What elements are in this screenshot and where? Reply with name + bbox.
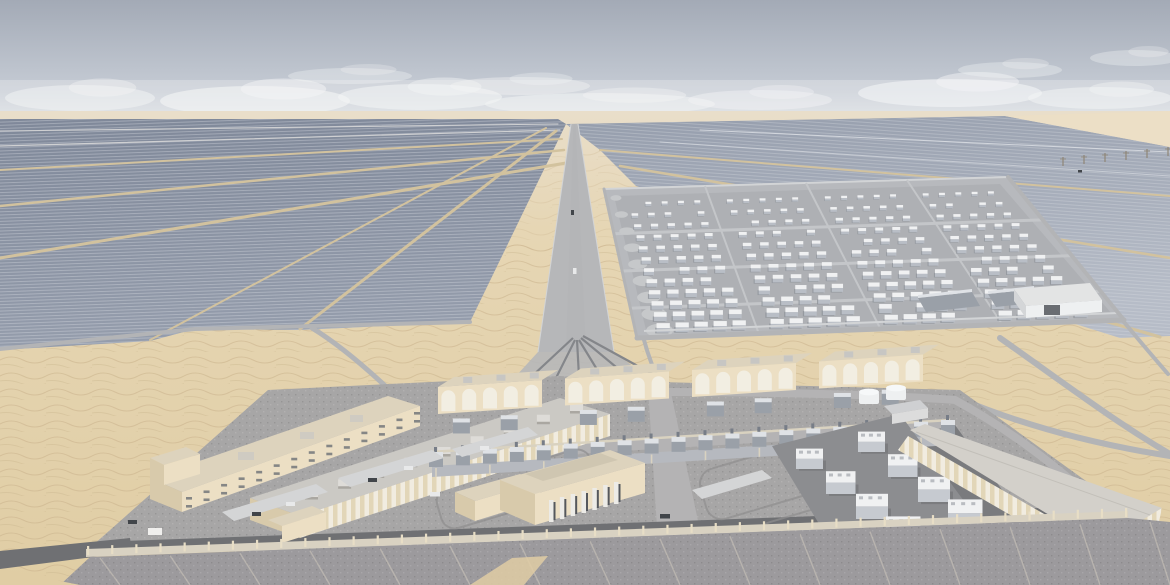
window [274,464,280,467]
vehicle [1078,170,1082,173]
bushing [542,440,545,445]
battery-unit-front [887,252,896,255]
battery-unit-front [791,278,802,282]
facade-arch [906,359,920,380]
battery-unit [809,318,822,323]
battery-unit-front [968,239,977,242]
window [186,497,192,500]
battery-unit-front [957,250,966,253]
wall-post [642,526,644,535]
wall-post [87,546,89,555]
window [256,479,262,482]
battery-unit [781,297,793,301]
battery-unit [886,216,893,219]
battery-unit-front [686,293,697,297]
battery-unit [858,228,866,231]
battery-unit-front [727,202,733,204]
transformer-top [580,410,597,414]
switchgear-unit [618,444,632,455]
battery-unit-front [782,256,791,259]
battery-unit [692,311,705,316]
window [204,498,210,501]
window [309,459,315,462]
battery-unit-front [639,249,648,252]
battery-unit-front [763,302,775,306]
vehicle [128,520,137,524]
facade-arch [504,386,518,407]
bushing [434,447,437,452]
rooftop-unit [238,452,254,460]
battery-unit [760,242,769,245]
stack-pipe [614,482,619,504]
facade-arch [716,372,730,393]
battery-unit [776,198,782,200]
battery-unit-front [804,311,817,315]
genset-vent [815,451,819,454]
window [291,458,297,461]
battery-unit [704,288,715,292]
battery-unit-front [923,285,934,289]
battery-unit [739,232,747,235]
battery-unit [683,278,694,282]
genset-vent [869,434,873,437]
battery-unit-front [807,233,815,236]
genset-vent [930,479,934,482]
battery-unit [874,293,886,297]
battery-unit-front [979,205,986,207]
battery-unit [827,273,838,277]
facade-arch [462,389,476,410]
battery-unit [996,278,1007,282]
battery-unit-front [929,262,939,265]
switchgear-top [591,442,605,447]
roof-vent [877,349,886,355]
wall-post [256,540,258,549]
battery-unit [832,284,843,288]
wall-post [473,532,475,541]
battery-unit-front [670,305,682,309]
battery-unit-front [726,303,738,307]
window [379,433,385,436]
stack-pipe [560,497,565,519]
battery-unit-front [743,246,752,249]
battery-unit-front [881,275,892,279]
battery-unit [676,322,689,327]
genset-vent [861,434,865,437]
battery-unit [892,227,900,230]
stack-gap [619,484,621,502]
battery-unit [1004,212,1011,215]
battery-unit [842,305,855,310]
battery-unit-front [874,197,880,199]
battery-unit [790,318,803,323]
battery-unit [727,199,733,201]
window [326,445,332,448]
cloud-puff [1128,46,1169,57]
genset-unit [948,499,983,513]
solar-plant-aerial-rendering [0,0,1170,585]
genset-unit [796,449,823,459]
transformer-top [501,415,518,419]
vehicle [660,514,670,519]
facade-arch [885,361,899,382]
battery-unit-front [747,257,756,260]
battery-unit-front [764,257,773,260]
battery-unit [985,235,994,238]
battery-unit [639,246,648,249]
facade-arch [525,385,539,406]
battery-unit-front [1027,248,1036,251]
battery-unit-front [946,206,953,208]
genset-front [858,442,885,452]
battery-unit-front [688,237,696,240]
battery-unit-front [674,248,683,251]
cloud-puff [510,73,573,86]
battery-unit-front [649,294,660,298]
battery-unit [864,239,873,242]
vehicle [404,466,413,470]
battery-unit-front [701,225,708,228]
bushing [784,425,787,430]
battery-unit [978,279,989,283]
battery-unit-front [992,249,1001,252]
battery-unit [1051,276,1062,280]
facade-arch [843,363,857,384]
battery-unit [764,253,773,256]
battery-unit [893,260,903,264]
battery-unit-front [773,234,781,237]
battery-unit-front [869,220,876,223]
battery-unit-front [792,200,798,202]
battery-unit-front [747,212,754,214]
battery-unit-front [995,227,1003,230]
wall-post [280,539,282,548]
battery-unit [756,231,764,234]
vehicle [368,478,377,482]
battery-unit-front [1014,282,1025,286]
wall-post [304,538,306,547]
window [221,484,227,487]
genset-vent [846,473,850,476]
hvac-unit [537,415,550,423]
battery-unit-front [832,288,843,292]
battery-unit-front [729,314,742,318]
battery-unit [874,195,880,197]
window [414,412,420,415]
battery-unit [1017,255,1027,259]
battery-unit [917,270,928,274]
battery-unit [708,244,717,247]
battery-unit-front [704,292,715,296]
battery-unit [847,207,854,210]
battery-unit-front [751,268,761,271]
bushing [596,437,599,442]
battery-unit [671,234,679,237]
bushing [569,439,572,444]
battery-unit-front [922,251,931,254]
window [379,425,385,428]
battery-unit-front [665,283,676,287]
roof-vent [496,375,505,381]
battery-unit-front [870,253,879,256]
battery-unit [710,310,723,315]
battery-unit [791,274,802,278]
battery-unit [923,193,929,195]
warehouse-door [1044,305,1060,315]
window [239,477,245,480]
battery-unit [989,267,1000,271]
battery-unit-front [1007,271,1018,275]
window [221,492,227,495]
battery-unit-front [731,213,738,215]
battery-unit-front [786,267,796,270]
bushing [757,427,760,432]
battery-unit-front [836,221,843,224]
stack-pipe [582,491,587,513]
transformer-top [628,407,645,411]
battery-unit [1012,223,1020,226]
cloud-puff [1002,58,1049,69]
battery-unit [825,196,831,198]
battery-unit [695,322,708,327]
battery-unit [812,241,821,244]
battery-unit [751,265,761,269]
battery-unit [935,269,946,273]
battery-unit [922,248,931,251]
battery-unit [694,255,703,258]
genset-unit [826,471,856,482]
genset-front [856,506,888,519]
battery-unit-front [667,294,678,298]
battery-unit-front [634,227,641,230]
battery-unit [939,193,945,195]
roof-vent [530,372,539,378]
battery-unit-front [776,200,782,202]
battery-unit [875,228,883,231]
bushing [811,423,814,428]
facade-arch [822,365,836,386]
wall-post [425,534,427,543]
battery-unit [785,307,798,312]
gatehouse [148,528,162,535]
battery-unit-front [645,204,651,206]
battery-unit [930,204,937,207]
battery-unit [733,320,746,325]
battery-unit [960,225,968,228]
wall-post [184,542,186,551]
switchgear-top [779,430,793,435]
stack-pipe [592,488,597,510]
battery-unit [852,250,861,253]
battery-unit-front [648,215,655,217]
stack-gap [554,502,556,520]
battery-unit-front [799,255,808,258]
bushing [946,415,949,420]
wall-post [1004,512,1006,521]
battery-unit-front [874,298,886,302]
battery-unit-front [678,203,684,205]
battery-unit [870,250,879,253]
wall-post [546,529,548,538]
battery-unit [649,290,660,294]
battery-unit-front [875,231,883,234]
roof-vent [844,351,853,357]
battery-unit [905,281,916,285]
roof-vent [911,347,920,353]
battery-unit [799,252,808,255]
battery-unit [691,245,700,248]
switchgear-unit [752,436,766,447]
battery-unit-front [1017,259,1027,262]
battery-unit [807,230,815,233]
battery-unit [950,236,959,239]
battery-unit [885,315,898,320]
battery-unit [654,235,662,238]
tank-top [859,389,879,396]
bushing [623,435,626,440]
battery-unit [689,300,701,304]
battery-unit-front [987,216,994,219]
battery-unit-front [692,315,705,319]
battery-unit [937,215,944,218]
battery-unit-front [930,206,937,208]
battery-unit [670,300,682,304]
battery-unit [686,289,697,293]
battery-unit [1002,234,1011,237]
genset-vent [859,496,863,499]
stack-gap [564,499,566,517]
battery-unit-front [651,226,658,229]
wall-post [690,524,692,533]
battery-unit-front [978,283,989,287]
battery-unit-front [760,245,769,248]
hvac-unit-side [338,486,351,489]
battery-unit [652,301,664,305]
switchgear-top [725,433,739,438]
wall-post [787,520,789,529]
battery-unit [647,279,658,283]
battery-unit [767,308,780,313]
roof-vent [717,360,726,366]
cloud-puff [1089,82,1154,97]
battery-unit [853,217,860,220]
battery-unit-front [955,195,961,197]
battery-unit [946,203,953,206]
battery-unit-front [817,255,826,258]
battery-unit [795,241,804,244]
battery-unit-front [960,228,968,231]
battery-unit-front [863,276,874,280]
battery-unit-front [654,317,667,321]
genset-vent [799,451,803,454]
battery-unit [1027,244,1036,247]
roof-vent [784,355,793,361]
battery-unit-front [668,226,675,229]
battery-unit-front [1000,260,1010,263]
battery-unit [795,285,806,289]
battery-unit-front [1033,281,1044,285]
battery-unit [768,220,775,223]
battery-unit [1007,267,1018,271]
battery-unit-front [982,260,992,263]
wall-post [811,519,813,528]
stack-pipe [603,485,608,507]
battery-unit-front [830,210,837,212]
window [344,446,350,449]
roof-vent [657,364,666,370]
battery-unit [698,211,705,214]
battery-unit [1033,277,1044,281]
battery-unit [836,218,843,221]
battery-unit-front [673,316,686,320]
genset-front [918,489,950,502]
facade-arch [589,380,603,401]
battery-unit [868,282,879,286]
battery-unit [680,267,690,271]
battery-unit-front [781,301,793,305]
battery-unit-front [989,271,1000,275]
battery-unit-front [644,272,654,275]
battery-unit-front [785,222,792,225]
window [361,432,367,435]
battery-unit-front [756,234,764,237]
window [239,485,245,488]
battery-unit [903,216,910,219]
battery-unit [726,299,738,303]
battery-unit-front [887,286,898,290]
switchgear-unit [645,443,659,454]
battery-unit [941,280,952,284]
battery-unit [881,271,892,275]
wall-post [763,521,765,530]
cloud-puff [583,88,687,103]
battery-unit-front [996,282,1007,286]
battery-unit-front [841,232,849,235]
wall-post [594,527,596,536]
battery-unit-front [662,204,668,206]
battery-unit [755,275,766,279]
battery-unit-front [950,239,959,242]
battery-unit-front [1035,259,1045,262]
battery-unit-front [841,198,847,200]
battery-unit-front [970,216,977,219]
wall-post [570,528,572,537]
switchgear-top [752,432,766,437]
battery-unit [899,270,910,274]
wall-post [739,522,741,531]
battery-unit-front [764,212,771,214]
battery-unit [1019,234,1028,237]
vehicle [286,502,295,506]
battery-unit [804,263,814,267]
battery-unit [773,231,781,234]
switchgear-top [806,428,820,433]
battery-unit-front [818,300,830,304]
rendering-canvas [0,0,1170,585]
battery-unit [665,212,672,215]
battery-unit [797,208,804,211]
window [396,427,402,430]
yard-edge-pad [610,195,621,201]
battery-unit [781,209,788,212]
battery-unit-front [804,266,814,269]
battery-unit-front [875,264,885,267]
battery-unit [642,257,651,260]
battery-unit [863,206,870,209]
battery-unit-front [953,217,960,220]
battery-unit [879,304,892,309]
battery-unit-front [823,311,836,315]
